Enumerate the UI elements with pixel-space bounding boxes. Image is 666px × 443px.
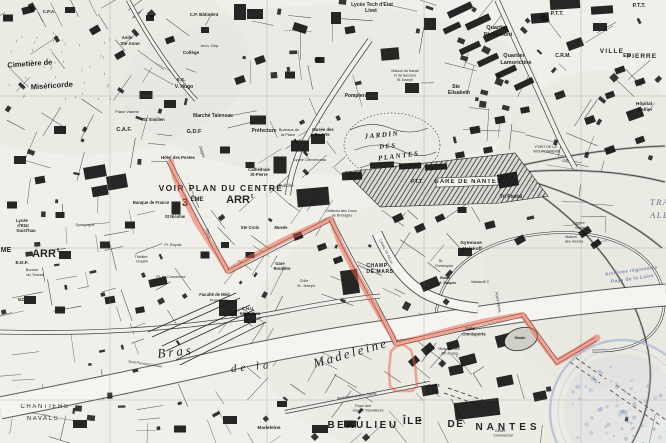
map-label: Arch. Dép. <box>201 43 220 48</box>
map-label: Foyer des <box>355 404 371 408</box>
map-label: Centre <box>573 221 584 225</box>
map-label: Banque de France <box>133 200 170 205</box>
map-label: de Bretagne <box>332 214 353 218</box>
map-label: G.D.F <box>187 129 202 135</box>
map-label: C.P.A. <box>43 9 56 14</box>
map-label: Aff. étrang. <box>441 352 459 356</box>
map-label: Jeunes Travailleurs <box>353 409 384 413</box>
map-label: Social <box>575 226 585 230</box>
route-start-dot <box>168 159 174 165</box>
map-label: Pharmacie <box>210 299 228 303</box>
map-label: Théâtre <box>134 255 147 259</box>
map-label: Lycée Clemenceau <box>294 158 326 162</box>
map-label: NANTES <box>475 422 540 433</box>
map-label: Pl. Royale <box>164 243 181 247</box>
map-label: BEAULIEU <box>327 420 398 431</box>
map-label: Madeleine <box>257 425 281 431</box>
map-label: t <box>251 194 253 200</box>
map-label: Graslin <box>136 260 148 264</box>
map-label: C.R.M. <box>555 53 571 59</box>
map-label: St. Joseph <box>297 284 315 288</box>
map-label: N.D. <box>18 297 26 302</box>
map-label: t <box>57 248 59 254</box>
map-label: Richemont <box>484 32 513 38</box>
map-label: Synagogue <box>75 223 94 227</box>
map-label: Maison <box>565 235 577 239</box>
map-label: M. Saupin <box>438 281 457 285</box>
map-label: Centre <box>495 429 506 433</box>
map-label: Elisabeth <box>448 90 470 96</box>
map-label: Stade <box>440 276 450 280</box>
map-label: ÈME <box>190 195 203 203</box>
map-label: C.P. Bâtiment <box>190 12 219 17</box>
map-label: PIERRE <box>627 53 657 60</box>
map-label: MOUTONNERIE <box>534 150 561 154</box>
map-label: Pl. du Commerce <box>156 275 185 279</box>
map-label: ME <box>1 247 12 254</box>
map-label: Ste Croix <box>241 225 260 230</box>
map-label: Pompiers <box>345 93 368 99</box>
map-label: CHANTIERS <box>20 404 69 410</box>
handwritten-route-note: TRAJET ALLER <box>650 196 666 222</box>
map-label: St-Pierre <box>250 172 268 177</box>
map-label: du Travail <box>26 272 43 277</box>
map-label: Marché Talensac <box>193 113 233 119</box>
map-label: la Place <box>281 132 296 137</box>
map-label: DE MARS <box>366 269 393 275</box>
map-label: Maison du travail <box>391 69 418 73</box>
map-label: Ministère des <box>438 347 460 351</box>
map-label: E.D.F. <box>15 260 28 266</box>
map-label: DE <box>448 419 465 430</box>
map-label: Hôtel des Postes <box>161 155 195 160</box>
map-label: St Joseph <box>397 78 413 82</box>
map-label: Commercial <box>493 434 512 438</box>
scanned-city-map: C.P.A.Cimetière deMiséricordeAsileSte An… <box>0 0 666 443</box>
map-label: Ste Anne <box>120 41 140 46</box>
map-label: des Jeunes <box>565 240 584 244</box>
map-label: Musée <box>274 225 288 230</box>
map-label: P.T.T. <box>550 11 564 17</box>
map-label: ÎLE <box>402 414 423 427</box>
map-label: ARR <box>32 248 56 260</box>
trajet-word: TRAJET <box>650 196 666 209</box>
map-label: Asile <box>122 35 133 40</box>
map-label: Faculté de Méd. <box>199 292 230 297</box>
map-label: Routière <box>274 266 292 271</box>
map-label: St Nicolas <box>165 214 186 219</box>
map-label: Chlle <box>300 279 309 283</box>
map-label: Malakoff <box>462 246 482 252</box>
map-label: V. Hugo <box>175 84 193 90</box>
map-label: E.S. <box>177 77 186 82</box>
map-label: Hôtel Dieu <box>240 311 261 316</box>
map-label: P.T.T. <box>632 3 646 9</box>
map-label: Livet <box>365 8 377 14</box>
map-label: Gymnase <box>460 240 482 246</box>
map-label: Guist'hau <box>16 228 36 233</box>
map-label: Lamoricière <box>500 60 531 66</box>
aller-word: ALLER <box>650 209 666 222</box>
map-label: Place Viarme <box>115 109 139 114</box>
map-label: C.A.F. <box>116 127 132 133</box>
map-label: Christophe <box>435 264 453 268</box>
map-label: Château des Ducs <box>325 209 356 213</box>
map-label: Hôpital <box>636 101 652 107</box>
map-label: P.T.T. <box>431 384 440 388</box>
map-label: et de Secours <box>394 74 416 78</box>
map-label: St Similien <box>143 117 165 122</box>
map-label: Stade <box>515 335 527 340</box>
map-label: ARR <box>226 194 250 206</box>
map-canvas: C.P.A.Cimetière deMiséricordeAsileSte An… <box>0 0 666 443</box>
map-label: Bellier <box>638 107 653 113</box>
map-label: Malakoff 2 <box>471 280 488 284</box>
map-label: PONT DE LA <box>535 145 557 149</box>
map-label: NAVALS <box>27 416 59 422</box>
map-label: Omnisports <box>462 332 486 337</box>
map-label: GARE DE NANTES <box>434 179 502 185</box>
map-label: VILLE <box>600 48 624 55</box>
map-label: Bx-Arts <box>314 132 330 137</box>
map-label: Collège <box>183 50 200 55</box>
map-label: Tri Postal <box>500 194 523 200</box>
map-label: Préfecture <box>252 128 277 134</box>
map-label: P.T.T. <box>411 179 423 185</box>
map-label: Quartier <box>503 53 525 59</box>
map-label: St. <box>439 259 444 263</box>
map-label: Quartier <box>486 25 508 31</box>
